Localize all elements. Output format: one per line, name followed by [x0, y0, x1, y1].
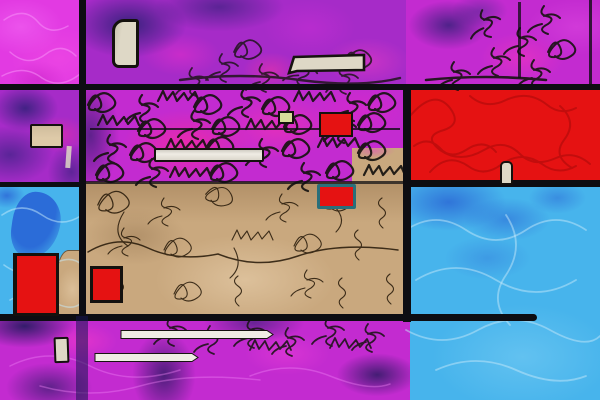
thin-band-line	[90, 128, 400, 130]
red-rect-teal-border	[317, 184, 356, 209]
yellow-rect	[278, 111, 294, 124]
thin-vertical-line-far-right	[589, 0, 592, 86]
dark-column-bottom-strip	[76, 316, 88, 400]
right-blue-block	[406, 185, 600, 400]
horizontal-grid-line-mid-center	[84, 181, 406, 184]
vertical-grid-line-left	[79, 0, 86, 318]
vertical-grid-line-right	[403, 84, 411, 322]
cream-banner	[288, 54, 365, 74]
top-left-magenta-block	[0, 0, 84, 90]
thin-white-bar-lower	[95, 353, 199, 362]
right-top-magenta-block	[406, 0, 600, 90]
red-rect-top-center	[319, 112, 353, 137]
horizontal-grid-line-upper	[0, 84, 600, 90]
cream-pill-on-red	[500, 161, 513, 185]
left-red-rect	[13, 253, 59, 316]
center-red-square	[90, 266, 123, 303]
mid-white-bar	[154, 148, 264, 162]
center-tan-field	[84, 182, 406, 318]
left-cream-rect	[30, 124, 63, 148]
small-cream-rect	[54, 337, 70, 364]
cream-tall-rect	[112, 19, 139, 68]
horizontal-grid-line-mid-left	[0, 182, 86, 187]
thin-white-bar-upper	[121, 330, 274, 339]
abstract-painting-canvas	[0, 0, 600, 400]
tan-corner-patch	[352, 148, 406, 184]
thin-vertical-line-righttop	[518, 2, 521, 78]
